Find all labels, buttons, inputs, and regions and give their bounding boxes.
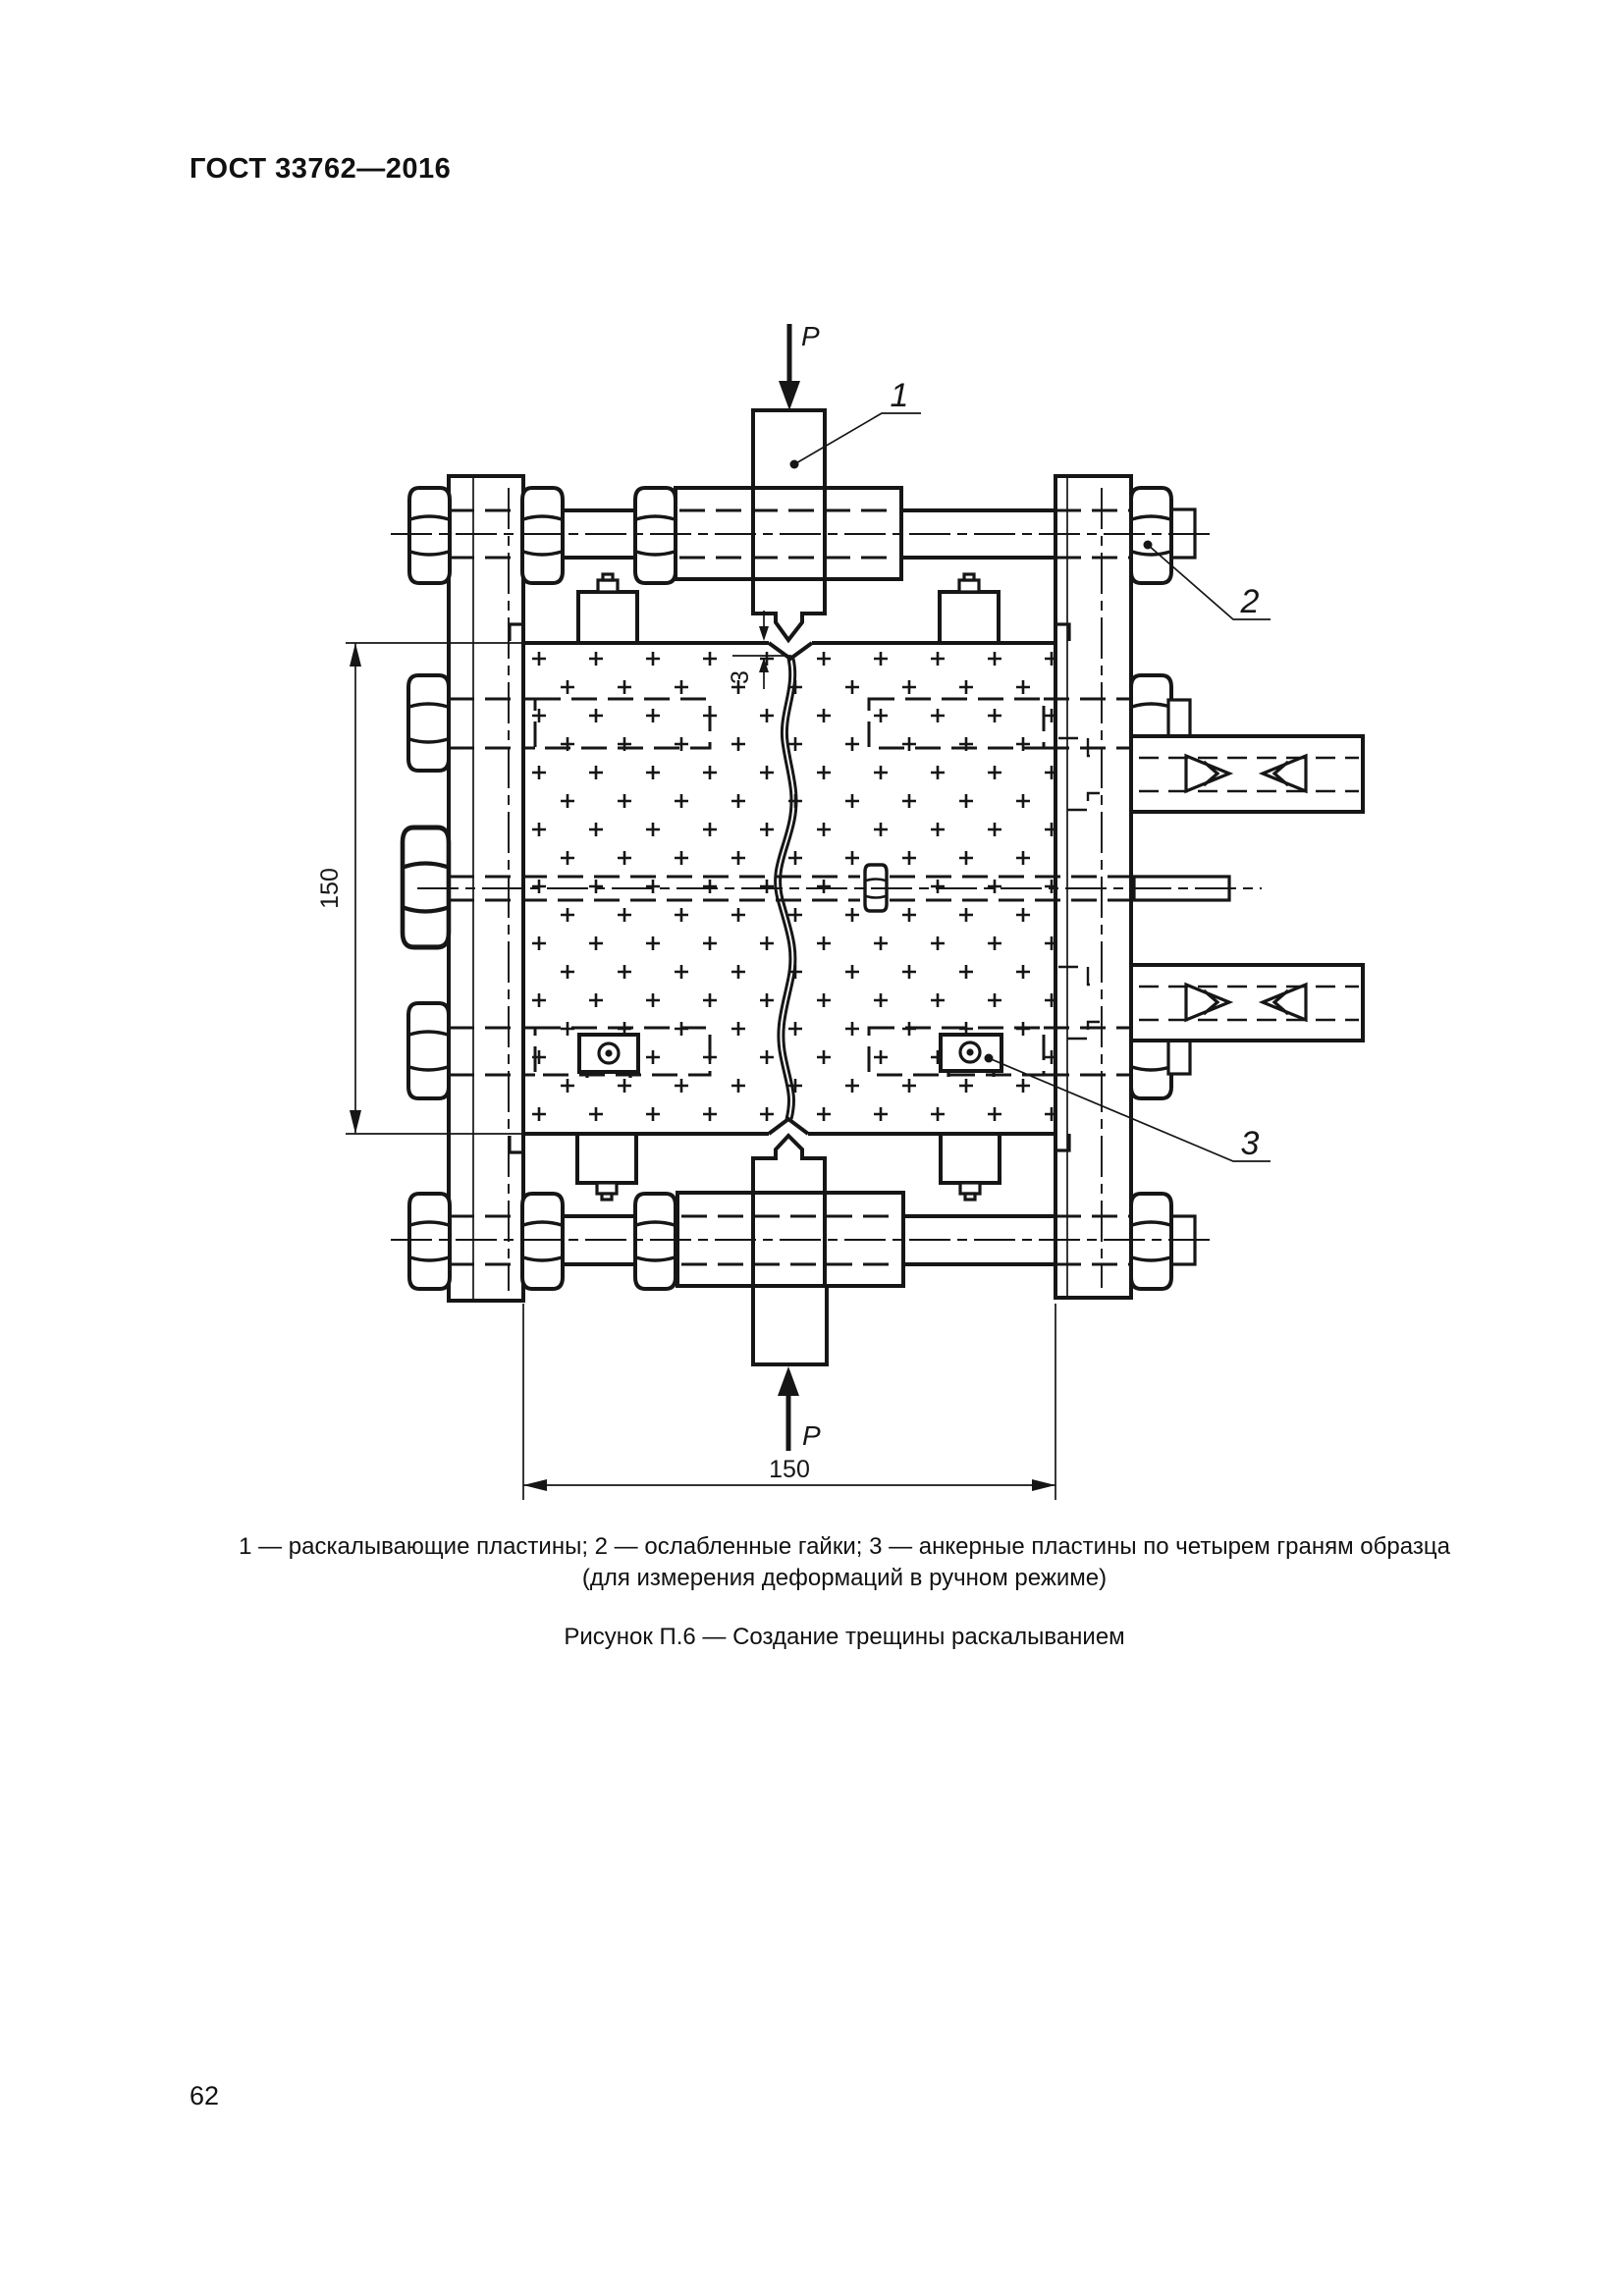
force-arrow-top: P xyxy=(779,321,820,410)
page-number: 62 xyxy=(189,2081,219,2111)
top-splitting-plate xyxy=(753,410,825,640)
document-page: ГОСТ 33762—2016 xyxy=(0,0,1623,2296)
figure-legend-line2: (для измерения деформаций в ручном режим… xyxy=(147,1563,1542,1593)
dim-notch-label: 3 xyxy=(727,670,754,684)
right-column xyxy=(1055,476,1131,1298)
anchor-plate-left xyxy=(579,1035,638,1078)
callout-3-label: 3 xyxy=(1241,1125,1260,1162)
callout-2-label: 2 xyxy=(1240,583,1260,620)
figure-legend-line1: 1 — раскалывающие пластины; 2 — ослаблен… xyxy=(147,1531,1542,1562)
force-arrow-bottom: P xyxy=(778,1366,821,1451)
extensometer-top xyxy=(1131,736,1363,812)
force-label-bottom: P xyxy=(802,1420,821,1451)
force-label-top: P xyxy=(801,321,820,351)
dim-width-label: 150 xyxy=(769,1456,810,1483)
splitting-test-diagram: P P 150 150 3 xyxy=(0,0,1623,2296)
dim-height-label: 150 xyxy=(316,868,344,909)
figure-caption: Рисунок П.6 — Создание трещины раскалыва… xyxy=(147,1622,1542,1652)
callout-1-label: 1 xyxy=(891,377,909,414)
bottom-splitting-plate xyxy=(753,1136,827,1364)
extensometer-bottom xyxy=(1131,965,1363,1041)
